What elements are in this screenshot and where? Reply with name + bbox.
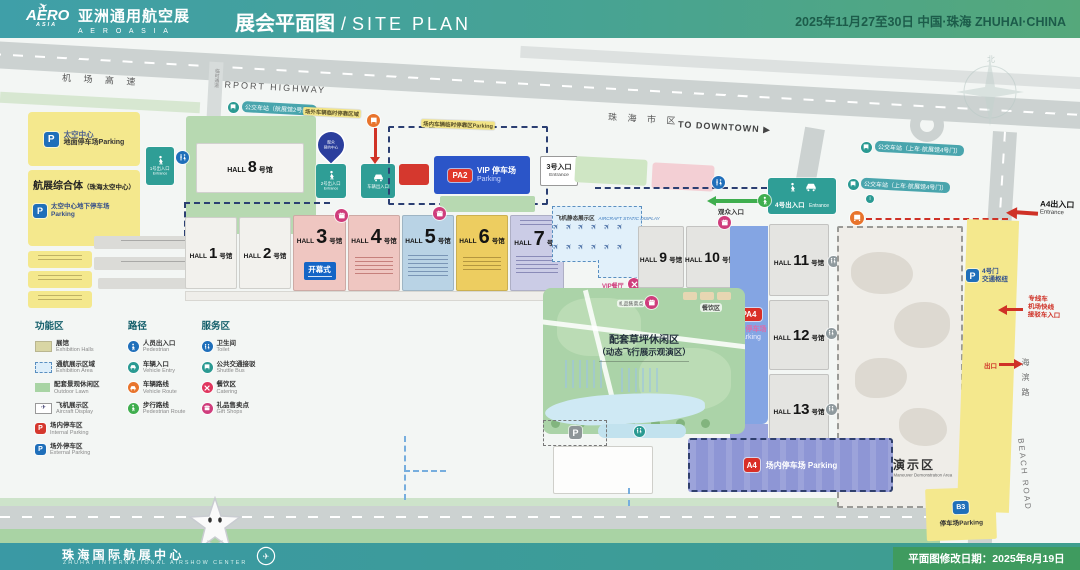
legend-title-routes: 路径 [128,318,188,332]
hall-desc-lines [355,257,393,275]
logo-cn: 亚洲通用航空展 [78,5,190,26]
bus-stop-icon-2 [861,142,872,153]
exit-arrowhead [1014,359,1023,369]
bus-stop-label-2: 公交车站（上车·航展馆4号门） [875,141,965,157]
corridor-bar [98,278,194,289]
toilet-icon-gray [826,404,837,415]
boundary-dashed-top [184,202,330,204]
aircraft-glyph-grid: ✈✈✈✈✈✈✈✈✈✈✈✈ [556,221,638,259]
logo-badge: AERO ASIA [26,8,69,29]
exit-label: 出口 [984,360,997,370]
pedestrian-route-dashed [404,470,446,472]
gate4-hub-label: P 4号门 交通枢纽 [966,268,1008,284]
vehicle-route-arrowhead [370,157,380,164]
toilet-icon [202,341,213,352]
hall-swatch [35,341,52,352]
page-title: 展会平面图 / SITE PLAN [235,7,471,36]
toilet-icon [176,151,189,164]
vehicle-route-arrow [374,128,377,158]
downtown-label-en: TO DOWNTOWN ▶ [678,119,772,136]
legend-item: 车辆入口Vehicle Entry [128,361,188,375]
catering-label: 餐饮区 [700,303,722,312]
visitor-entrance-label: 观众入口 [718,206,744,216]
south-verge-top [0,498,935,506]
entrance-4: 4号出入口 Entrance [768,178,836,214]
legend-item: 步行路线Pedestrian Route [128,402,188,416]
logo-en: A E R O A S I A [78,28,190,35]
legend-item: 餐饮区Catering [202,381,265,395]
vehicle-route-icon [367,114,380,127]
parking-p-icon-gray: P [569,426,582,439]
footer-logo-icon: ✈ [258,548,274,564]
a4-badge: A4 [744,458,760,472]
vehicle-route-icon [128,382,139,393]
parking-p-icon: P [44,132,59,147]
compass-icon: 北 [950,52,1030,137]
hall-3: HALL3号馆 开幕式 [293,215,346,291]
red-building [399,164,429,185]
camo-blob [894,302,950,348]
legend-item: ✈ 飞机展示区Aircraft Display [35,402,114,416]
aircraft-display-area-ext [598,260,642,278]
complex-subtitle: （珠海太空中心） [83,184,135,191]
south-building [553,446,653,494]
space-center-ground-parking: P 太空中心 地面停车场Parking [28,112,140,166]
roundabout [910,108,944,142]
page-title-en: SITE PLAN [352,14,471,35]
small-yellow-box [28,251,92,268]
vip-parking-line2: Parking [477,176,516,184]
logo-badge-text: AERO [26,8,69,23]
airshow-complex-block: 航展综合体（珠海太空中心） P 太空中心地下停车场 Parking [28,170,140,246]
legend-item: 人员出入口Pedestrian [128,340,188,354]
complex-title: 航展综合体 [33,181,83,192]
gift-shop-icon [433,207,446,220]
revision-date: 平面图修改日期：2025年8月19日 [908,551,1064,566]
legend-item: 卫生间Toilet [202,340,265,354]
downtown-label-cn: 珠 海 市 区 [608,110,680,127]
legend-item: 公共交通接驳Shuttle Bus [202,361,265,375]
footer-center-en: ZHUHAI INTERNATIONAL AIRSHOW CENTER [63,560,247,565]
shuttle-entry-arrowbar [1007,308,1023,311]
hall-1: HALL1号馆 [185,217,237,289]
pedestrian-route-icon [128,403,139,414]
info-dot-icon: i [866,195,874,203]
temp-road: 临时通道 [206,62,223,121]
vehicle-entry-icon [128,362,139,373]
shuttle-bus-icon [202,362,213,373]
event-date: 2025年11月27至30日 中国·珠海 ZHUHAI·CHINA [795,11,1066,30]
camo-blob [855,358,907,398]
hall-desc-lines [408,255,448,277]
legend-item: P 场内停车区Internal Parking [35,422,114,436]
space-parking-line2: 地面停车场Parking [64,139,125,148]
lawn-label: 配套草坪休闲区 （动态飞行展示观演区） [556,334,732,365]
green-patch [440,196,535,212]
visitor-route-arrowhead [707,196,716,206]
b3-parking-block: B3 停车场Parking [925,487,997,541]
hall-9: HALL9号馆 [638,226,684,288]
vip-parking-line1: VIP 停车场 [477,166,516,176]
opening-ceremony-badge: 开幕式 [304,262,336,280]
site-plan-page: ✈ AERO ASIA 亚洲通用航空展 A E R O A S I A 展会平面… [0,0,1080,570]
lawn-swatch [35,383,50,392]
underground-parking-line1: 太空中心地下停车场 [51,203,110,211]
hall-5: HALL5号馆 [402,215,454,291]
camo-blob [899,408,947,446]
a4-entrance-arrowbar [1016,210,1038,216]
aircraft-display-swatch: ✈ [35,403,52,414]
vip-parking: PA2 VIP 停车场 Parking [434,156,530,194]
legend-item: P 场外停车区External Parking [35,443,114,457]
page-title-cn: 展会平面图 [235,7,335,36]
bus-stop-icon-1 [228,102,239,113]
visitor-route-arrow [716,199,760,203]
legend-item: 礼品售卖点Gift Shops [202,402,265,416]
hall-desc-lines [520,220,554,227]
hardstand-grid [621,368,663,392]
space-parking-line1: 太空中心 [64,130,125,139]
green-patch [574,156,647,186]
hall-11: HALL11号馆 [769,224,829,296]
entrance-2: 2号出入口 Entrance [316,164,346,198]
legend: 功能区 展馆Exhibition Halls 通航展示区域Exhibition … [35,318,265,463]
entrance-3: 3号入口 Entrance [540,156,578,186]
exhibition-area-swatch [35,362,52,373]
hall-12: HALL12号馆 [769,300,829,370]
hall-13: HALL13号馆 [769,374,829,444]
gift-shop-label: 礼品售卖点 [617,300,645,307]
legend-item: 配套景观休闲区Outdoor Lawn [35,381,114,395]
hall-desc-lines [463,257,501,271]
page-title-sep: / [341,14,346,35]
legend-title-services: 服务区 [202,318,265,332]
b3-badge: B3 [953,501,969,515]
hall-6: HALL6号馆 [456,215,508,291]
boundary-dashed-halls910 [595,187,767,189]
hall-4: HALL4号馆 [348,215,400,291]
exit-arrowbar [999,363,1014,366]
underground-parking-line2: Parking [51,211,110,219]
gift-shop-icon [202,403,213,414]
bus-stop-icon-3 [848,179,859,190]
legend-title-functions: 功能区 [35,318,114,332]
highway-verge [0,92,200,113]
south-road [0,506,935,529]
beach-road-label-en: BEACH ROAD [1016,438,1033,511]
gift-shop-icon [335,209,348,222]
pedestrian-route-dashed [404,436,406,500]
revision-date-box: 平面图修改日期：2025年8月19日 [893,547,1080,570]
parking-p-icon: P [33,204,47,218]
hall-8: HALL8号馆 [196,143,304,193]
logo-wordmark: 亚洲通用航空展 A E R O A S I A [78,5,190,35]
legend-item: 通航展示区域Exhibition Area [35,361,114,375]
shuttle-entry-arrowhead [998,305,1007,315]
catering-x-icon [202,382,213,393]
south-verge-bottom [0,529,940,544]
gift-shop-icon [645,296,658,309]
toilet-icon-gray [826,328,837,339]
pa2-badge: PA2 [448,169,472,182]
lawn-label-en-lines [599,361,689,365]
visitor-reservation-pin: 观众 预约中心 [313,127,350,164]
catering-stalls [683,292,731,300]
legend-item: 展馆Exhibition Halls [35,340,114,354]
a4-parking-label: 场内停车场 Parking [766,460,838,471]
b3-parking-label: 停车场Parking [939,516,983,528]
entrance-1: 1号出入口 Entrance [146,147,174,185]
gift-shop-icon [718,216,731,229]
temp-road-label: 临时通道 [212,68,220,88]
pedestrian-route-dashed [628,488,630,506]
hall-corridor [185,291,564,301]
svg-text:北: 北 [987,55,995,64]
a4-entrance-label: A4出入口 Entrance [1040,199,1075,217]
pedestrian-route-icon [758,194,771,207]
toilet-icon [712,176,725,189]
toilet-icon-teal [634,426,645,437]
internal-parking-icon: P [35,423,46,434]
shuttle-entry-label: 专线车 机场快线 接驳车入口 [1028,295,1061,320]
legend-item: 车辆路线Vehicle Route [128,381,188,395]
external-parking-icon: P [35,444,46,455]
pedestrian-entry-icon [128,341,139,352]
parking-p-icon: P [966,269,979,282]
bus-stop-label-3: 公交车站（上车·航展馆4号门） [861,178,951,194]
camo-blob [851,252,913,294]
small-yellow-box [28,291,92,308]
vehicle-route-icon [850,211,864,225]
hall-10: HALL10号馆 [686,226,734,288]
small-yellow-box [28,271,92,288]
hall-2: HALL2号馆 [239,217,291,289]
a4-parking-area: A4 场内停车场 Parking [688,438,893,492]
